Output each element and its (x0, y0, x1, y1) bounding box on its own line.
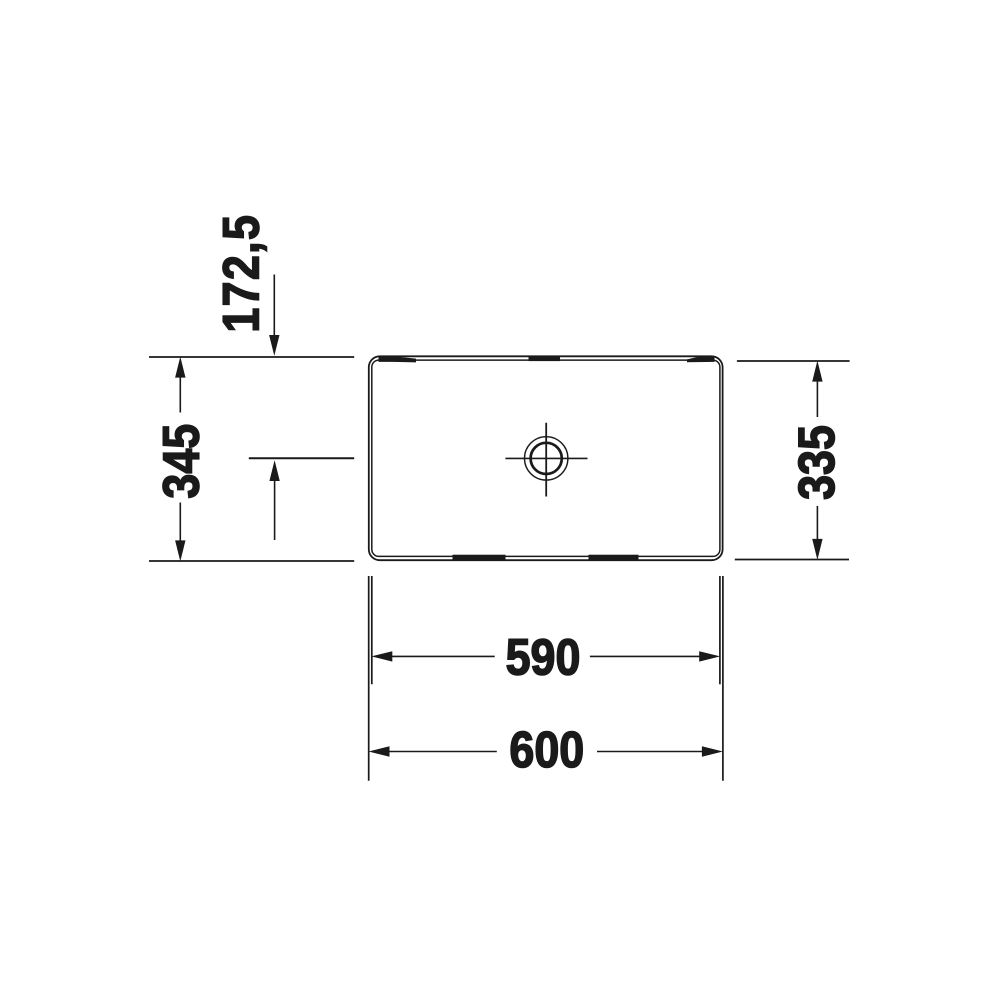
svg-text:600: 600 (509, 722, 584, 778)
svg-text:335: 335 (790, 425, 846, 500)
svg-text:590: 590 (506, 630, 581, 686)
svg-text:172,5: 172,5 (214, 214, 270, 333)
svg-text:345: 345 (154, 424, 210, 499)
